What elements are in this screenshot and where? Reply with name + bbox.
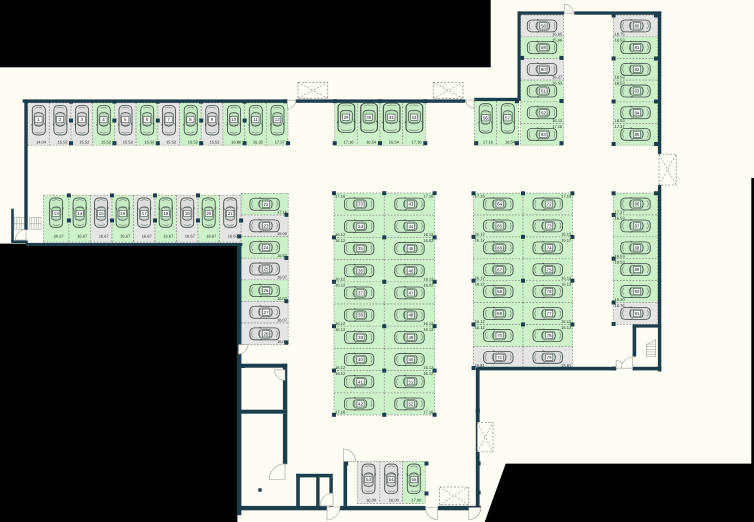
svg-text:16.12: 16.12 <box>423 327 434 332</box>
svg-text:33: 33 <box>358 202 363 207</box>
svg-text:88: 88 <box>634 245 639 250</box>
svg-text:20: 20 <box>206 211 211 216</box>
svg-text:60: 60 <box>541 67 546 72</box>
svg-text:32: 32 <box>412 115 417 120</box>
svg-text:65: 65 <box>497 224 502 229</box>
svg-text:21: 21 <box>228 211 233 216</box>
svg-text:16.12: 16.12 <box>561 281 572 286</box>
svg-text:57: 57 <box>505 115 510 120</box>
svg-text:71: 71 <box>497 355 502 360</box>
svg-text:16.67: 16.67 <box>120 234 131 239</box>
svg-text:42: 42 <box>358 402 363 407</box>
svg-text:16.12: 16.12 <box>423 371 434 376</box>
svg-text:14.04: 14.04 <box>36 139 47 144</box>
svg-text:74: 74 <box>547 245 552 250</box>
svg-text:89: 89 <box>634 267 639 272</box>
svg-text:16.86: 16.86 <box>231 139 242 144</box>
svg-text:28: 28 <box>264 331 269 336</box>
svg-text:82: 82 <box>634 67 639 72</box>
svg-text:90: 90 <box>634 289 639 294</box>
svg-text:16.12: 16.12 <box>335 282 346 287</box>
svg-text:79: 79 <box>547 355 552 360</box>
svg-text:16.07: 16.07 <box>277 318 288 323</box>
svg-text:16.12: 16.12 <box>335 327 346 332</box>
svg-text:53: 53 <box>366 477 371 482</box>
svg-text:27: 27 <box>264 310 269 315</box>
svg-text:13: 13 <box>54 211 59 216</box>
svg-text:91: 91 <box>634 311 639 316</box>
svg-text:51: 51 <box>408 379 413 384</box>
svg-text:17.16: 17.16 <box>552 124 563 129</box>
svg-text:16.12: 16.12 <box>423 276 434 281</box>
svg-text:47: 47 <box>408 291 413 296</box>
svg-text:16.67: 16.67 <box>142 234 153 239</box>
svg-text:16.12: 16.12 <box>561 275 572 280</box>
svg-text:25: 25 <box>264 267 269 272</box>
svg-text:17.00: 17.00 <box>411 498 422 503</box>
svg-text:17.16: 17.16 <box>343 140 354 145</box>
svg-text:24: 24 <box>264 245 269 250</box>
svg-text:78: 78 <box>547 333 552 338</box>
svg-text:63: 63 <box>541 132 546 137</box>
svg-text:75: 75 <box>547 267 552 272</box>
svg-text:16.12: 16.12 <box>423 365 434 370</box>
svg-text:84: 84 <box>634 110 639 115</box>
svg-text:29: 29 <box>344 115 349 120</box>
svg-text:16.65: 16.65 <box>552 31 563 36</box>
svg-text:67: 67 <box>497 267 502 272</box>
svg-text:16.07: 16.07 <box>277 274 288 279</box>
svg-text:16.12: 16.12 <box>423 232 434 237</box>
svg-text:19: 19 <box>185 211 190 216</box>
svg-text:16.67: 16.67 <box>228 234 239 239</box>
svg-text:16.67: 16.67 <box>163 234 174 239</box>
svg-text:52: 52 <box>408 402 413 407</box>
svg-text:17.16: 17.16 <box>475 194 486 199</box>
svg-text:16.67: 16.67 <box>77 234 88 239</box>
svg-text:16.67: 16.67 <box>206 234 217 239</box>
svg-text:16.12: 16.12 <box>561 238 572 243</box>
svg-text:59: 59 <box>541 45 546 50</box>
svg-text:16.12: 16.12 <box>475 232 486 237</box>
svg-text:72: 72 <box>547 202 552 207</box>
svg-text:48: 48 <box>408 313 413 318</box>
svg-text:56: 56 <box>483 115 488 120</box>
svg-text:15.52: 15.52 <box>188 139 199 144</box>
svg-text:73: 73 <box>547 224 552 229</box>
svg-text:16.12: 16.12 <box>335 371 346 376</box>
svg-text:37: 37 <box>358 291 363 296</box>
svg-text:16.53: 16.53 <box>615 118 626 123</box>
svg-text:55: 55 <box>411 477 416 482</box>
svg-text:39: 39 <box>358 335 363 340</box>
svg-text:16.00: 16.00 <box>277 231 288 236</box>
svg-text:17.16: 17.16 <box>335 194 346 199</box>
svg-text:15.52: 15.52 <box>144 139 155 144</box>
svg-text:17.16: 17.16 <box>483 139 494 144</box>
svg-text:15.52: 15.52 <box>166 139 177 144</box>
svg-text:70: 70 <box>497 333 502 338</box>
svg-text:16.76: 16.76 <box>615 303 626 308</box>
svg-text:66: 66 <box>497 245 502 250</box>
svg-text:40: 40 <box>358 357 363 362</box>
svg-text:62: 62 <box>541 110 546 115</box>
svg-text:77: 77 <box>547 311 552 316</box>
svg-text:15.52: 15.52 <box>58 139 69 144</box>
svg-text:16.12: 16.12 <box>335 232 346 237</box>
svg-text:12: 12 <box>275 117 280 122</box>
svg-text:23: 23 <box>264 223 269 228</box>
svg-text:16.35: 16.35 <box>253 139 264 144</box>
svg-text:22: 22 <box>264 202 269 207</box>
svg-text:16.12: 16.12 <box>561 232 572 237</box>
svg-text:16.54: 16.54 <box>505 139 516 144</box>
svg-text:85: 85 <box>634 132 639 137</box>
svg-text:80: 80 <box>634 24 639 29</box>
svg-text:58: 58 <box>541 24 546 29</box>
svg-text:16.12: 16.12 <box>335 276 346 281</box>
svg-text:16.12: 16.12 <box>561 319 572 324</box>
svg-text:17.16: 17.16 <box>423 194 434 199</box>
svg-text:18: 18 <box>163 211 168 216</box>
svg-text:16.53: 16.53 <box>552 81 563 86</box>
svg-text:16.12: 16.12 <box>475 238 486 243</box>
svg-text:16.12: 16.12 <box>475 319 486 324</box>
svg-text:15.52: 15.52 <box>101 139 112 144</box>
svg-text:15.52: 15.52 <box>209 139 220 144</box>
svg-text:76: 76 <box>547 289 552 294</box>
svg-text:15.52: 15.52 <box>123 139 134 144</box>
svg-text:16.12: 16.12 <box>335 365 346 370</box>
svg-text:16.67: 16.67 <box>185 234 196 239</box>
svg-text:16.53: 16.53 <box>615 259 626 264</box>
svg-text:46: 46 <box>408 268 413 273</box>
svg-text:15.52: 15.52 <box>79 139 90 144</box>
svg-text:16.53: 16.53 <box>615 81 626 86</box>
svg-text:41: 41 <box>358 379 363 384</box>
svg-text:16.54: 16.54 <box>389 140 400 145</box>
svg-text:86: 86 <box>634 202 639 207</box>
svg-text:17.37: 17.37 <box>615 210 626 215</box>
svg-text:16.53: 16.53 <box>615 75 626 80</box>
svg-text:16.12: 16.12 <box>552 118 563 123</box>
svg-text:17.16: 17.16 <box>411 140 422 145</box>
svg-text:16.02: 16.02 <box>423 238 434 243</box>
svg-text:61: 61 <box>541 89 546 94</box>
svg-text:16: 16 <box>120 211 125 216</box>
svg-text:31: 31 <box>389 115 394 120</box>
svg-text:36: 36 <box>358 268 363 273</box>
svg-text:49: 49 <box>408 335 413 340</box>
svg-text:16.00: 16.00 <box>389 498 400 503</box>
svg-text:20.27: 20.27 <box>54 234 65 239</box>
svg-text:87: 87 <box>634 224 639 229</box>
svg-text:17.37: 17.37 <box>275 139 286 144</box>
svg-text:17.16: 17.16 <box>561 194 572 199</box>
svg-text:16.00: 16.00 <box>366 498 377 503</box>
svg-text:50: 50 <box>408 357 413 362</box>
svg-text:16.20: 16.20 <box>615 297 626 302</box>
svg-text:16.02: 16.02 <box>423 282 434 287</box>
svg-text:16.53: 16.53 <box>615 37 626 42</box>
svg-text:16.67: 16.67 <box>99 234 110 239</box>
svg-text:14: 14 <box>77 211 82 216</box>
svg-text:83: 83 <box>634 89 639 94</box>
svg-text:81: 81 <box>634 45 639 50</box>
svg-text:16.12: 16.12 <box>561 325 572 330</box>
svg-text:17.16: 17.16 <box>423 410 434 415</box>
svg-text:16.12: 16.12 <box>475 281 486 286</box>
svg-text:16.12: 16.12 <box>423 321 434 326</box>
svg-text:16.53: 16.53 <box>615 216 626 221</box>
svg-text:15.66: 15.66 <box>552 37 563 42</box>
svg-text:16.75: 16.75 <box>615 31 626 36</box>
svg-text:17.37: 17.37 <box>615 124 626 129</box>
svg-text:16.54: 16.54 <box>366 140 377 145</box>
svg-text:38: 38 <box>358 313 363 318</box>
svg-text:16.53: 16.53 <box>615 253 626 258</box>
svg-text:44: 44 <box>408 224 413 229</box>
svg-text:68: 68 <box>497 289 502 294</box>
svg-text:69: 69 <box>497 311 502 316</box>
svg-text:35: 35 <box>358 246 363 251</box>
svg-text:11: 11 <box>253 117 258 122</box>
svg-text:16.12: 16.12 <box>475 275 486 280</box>
svg-text:45: 45 <box>408 246 413 251</box>
svg-text:43: 43 <box>408 202 413 207</box>
svg-text:10: 10 <box>231 117 236 122</box>
svg-text:26: 26 <box>264 288 269 293</box>
svg-text:54: 54 <box>389 477 394 482</box>
svg-text:16.12: 16.12 <box>335 238 346 243</box>
svg-text:15: 15 <box>99 211 104 216</box>
svg-text:16.27: 16.27 <box>552 75 563 80</box>
svg-text:16.12: 16.12 <box>335 321 346 326</box>
svg-text:64: 64 <box>497 202 502 207</box>
svg-text:34: 34 <box>358 224 363 229</box>
svg-text:30: 30 <box>366 115 371 120</box>
svg-text:16.12: 16.12 <box>475 325 486 330</box>
svg-text:17.16: 17.16 <box>335 410 346 415</box>
svg-text:17: 17 <box>142 211 147 216</box>
